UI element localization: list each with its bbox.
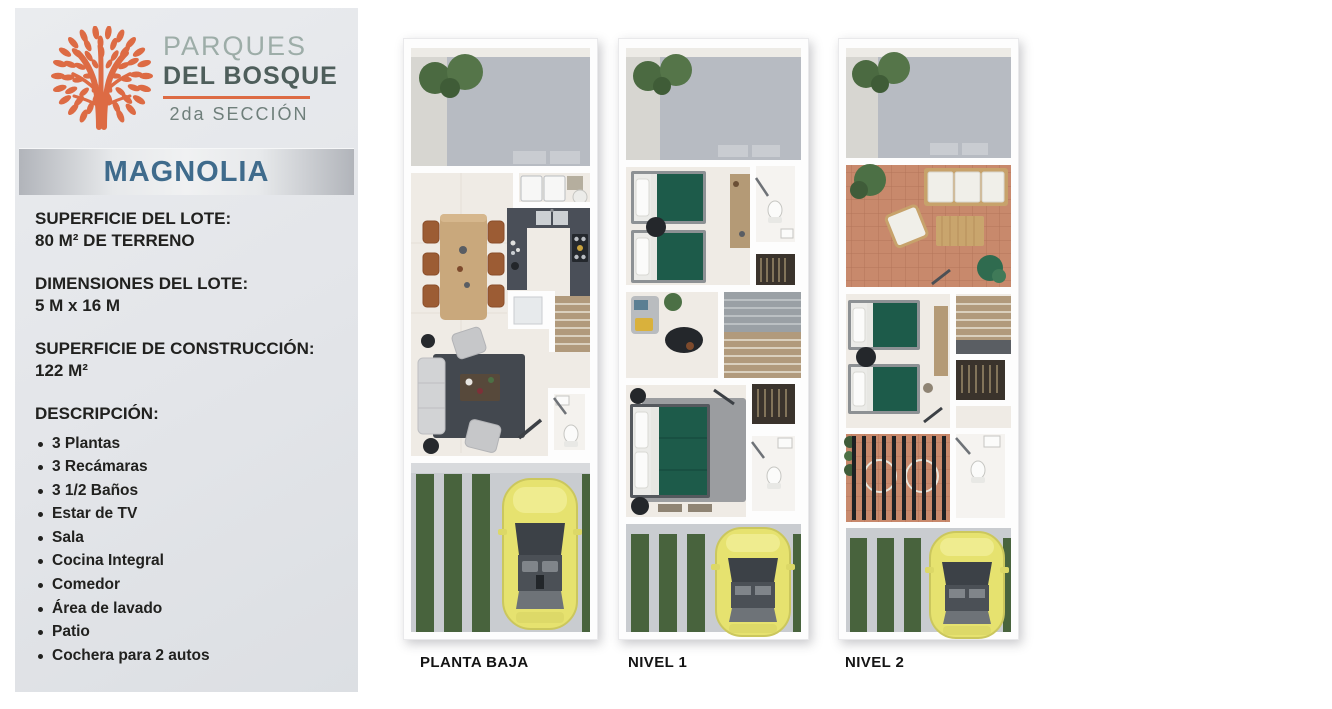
spec-value: 5 M x 16 M bbox=[35, 295, 346, 317]
spec-label: SUPERFICIE DE CONSTRUCCIÓN: bbox=[35, 338, 346, 360]
list-item: 3 Plantas bbox=[35, 432, 346, 456]
brand-logo: PARQUES DEL BOSQUE 2da SECCIÓN bbox=[51, 26, 315, 130]
spec-label: SUPERFICIE DEL LOTE: bbox=[35, 208, 346, 230]
dining-area bbox=[423, 214, 504, 320]
twin-bed bbox=[631, 171, 706, 224]
list-item: 3 1/2 Baños bbox=[35, 479, 346, 503]
bathroom-2 bbox=[750, 160, 801, 248]
specs-section: SUPERFICIE DEL LOTE: 80 M² DE TERRENO DI… bbox=[35, 208, 346, 667]
model-title-bar: MAGNOLIA bbox=[19, 148, 354, 195]
floorplan-label-planta-baja: PLANTA BAJA bbox=[420, 654, 529, 671]
info-panel: PARQUES DEL BOSQUE 2da SECCIÓN MAGNOLIA … bbox=[15, 8, 358, 692]
pergola bbox=[844, 434, 950, 522]
brand-name-line1: PARQUES bbox=[163, 31, 315, 61]
description-list: 3 Plantas 3 Recámaras 3 1/2 Baños Estar … bbox=[35, 432, 346, 668]
list-item: Patio bbox=[35, 620, 346, 644]
list-item: Cochera para 2 autos bbox=[35, 644, 346, 668]
floorplan-planta-baja bbox=[403, 38, 598, 640]
driveway bbox=[846, 528, 1011, 638]
bathroom-3 bbox=[950, 428, 1011, 524]
floorplan-nivel-1 bbox=[618, 38, 809, 640]
spec-construction-surface: SUPERFICIE DE CONSTRUCCIÓN: 122 M² bbox=[35, 338, 346, 381]
brand-text: PARQUES DEL BOSQUE 2da SECCIÓN bbox=[163, 31, 315, 125]
car-icon bbox=[925, 532, 1009, 638]
floorplan-nivel-2 bbox=[838, 38, 1019, 640]
car-icon bbox=[498, 479, 582, 629]
twin-bed bbox=[631, 230, 706, 283]
driveway bbox=[411, 463, 590, 632]
list-item: Estar de TV bbox=[35, 502, 346, 526]
floorplan-label-nivel-2: NIVEL 2 bbox=[845, 654, 904, 671]
list-item: 3 Recámaras bbox=[35, 455, 346, 479]
half-bathroom bbox=[548, 388, 590, 456]
outdoor-sofa bbox=[924, 168, 1008, 206]
list-item: Sala bbox=[35, 526, 346, 550]
patio-void bbox=[626, 48, 801, 160]
spec-value: 80 M² DE TERRENO bbox=[35, 230, 346, 252]
stove-icon bbox=[572, 234, 588, 262]
twin-bed bbox=[848, 364, 920, 414]
spec-lot-dimensions: DIMENSIONES DEL LOTE: 5 M x 16 M bbox=[35, 273, 346, 316]
floorplan-label-nivel-1: NIVEL 1 bbox=[628, 654, 687, 671]
tree-icon bbox=[51, 26, 153, 130]
patio-void bbox=[846, 48, 1011, 158]
stairs bbox=[549, 291, 590, 352]
brand-section-label: 2da SECCIÓN bbox=[163, 104, 315, 125]
spec-value: 122 M² bbox=[35, 360, 346, 382]
description-heading: DESCRIPCIÓN: bbox=[35, 403, 346, 425]
pantry-closet bbox=[508, 291, 553, 329]
laundry-area bbox=[513, 173, 590, 208]
brand-divider bbox=[163, 96, 310, 99]
spec-label: DIMENSIONES DEL LOTE: bbox=[35, 273, 346, 295]
queen-bed bbox=[630, 404, 710, 498]
closet bbox=[950, 354, 1011, 406]
master-bathroom bbox=[746, 430, 801, 517]
stairs bbox=[718, 292, 801, 378]
walk-in-closet bbox=[746, 378, 801, 430]
driveway bbox=[626, 524, 801, 636]
car-icon bbox=[711, 528, 795, 636]
brand-name-line2: DEL BOSQUE bbox=[163, 61, 315, 91]
twin-bed bbox=[848, 300, 920, 350]
spec-lot-surface: SUPERFICIE DEL LOTE: 80 M² DE TERRENO bbox=[35, 208, 346, 251]
list-item: Cocina Integral bbox=[35, 549, 346, 573]
list-item: Área de lavado bbox=[35, 597, 346, 621]
terrace bbox=[846, 164, 1011, 287]
patio bbox=[411, 48, 590, 166]
model-title: MAGNOLIA bbox=[104, 156, 270, 189]
list-item: Comedor bbox=[35, 573, 346, 597]
